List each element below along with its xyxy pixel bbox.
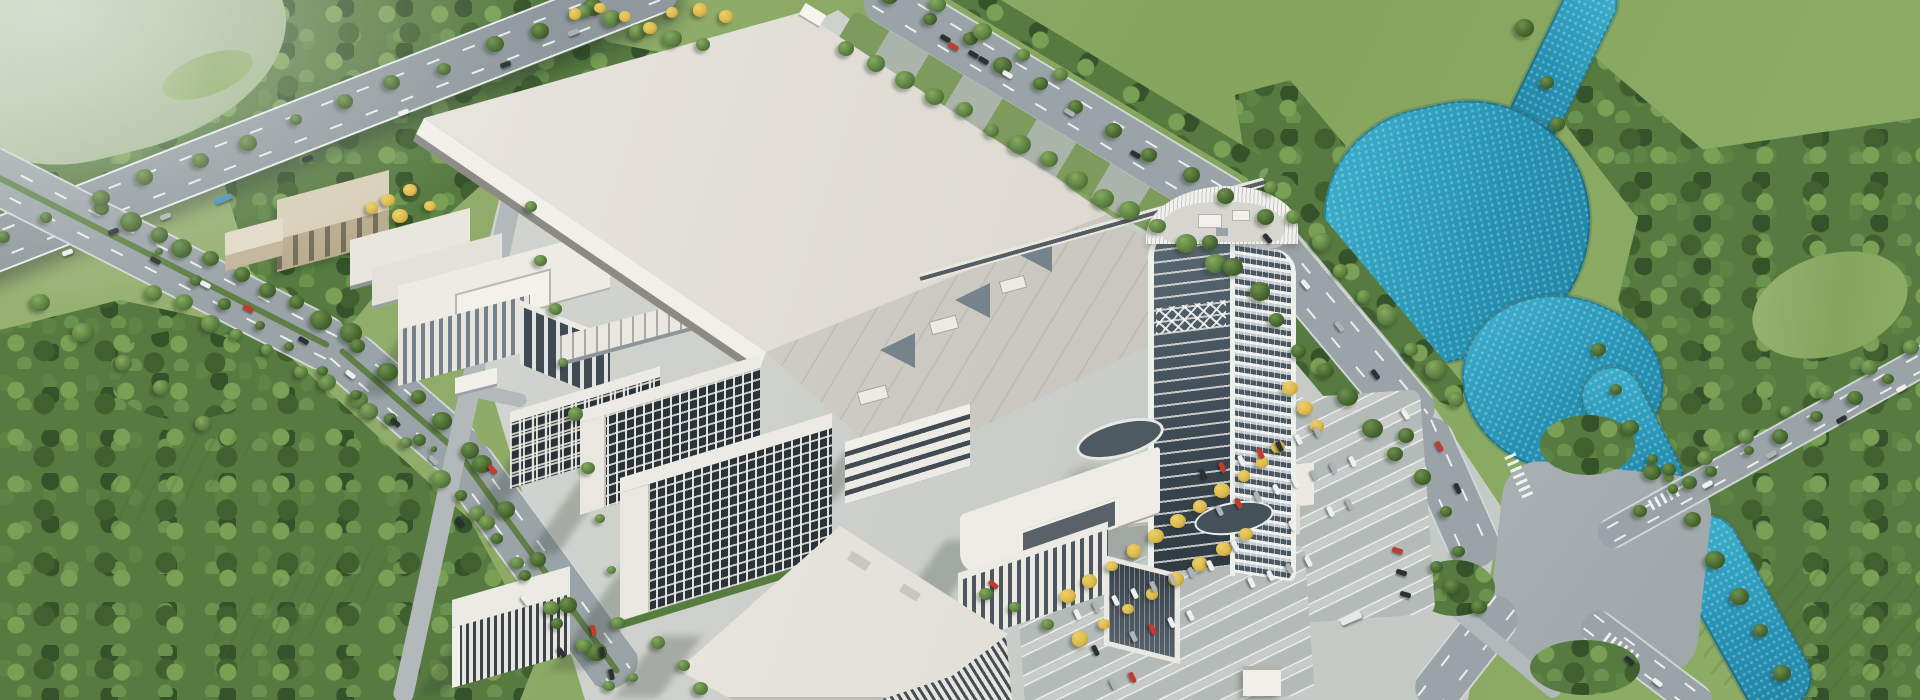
car — [1345, 498, 1354, 510]
tree-green-icon — [1810, 411, 1823, 422]
car — [1199, 468, 1208, 480]
tree-green-icon — [1040, 151, 1058, 167]
tree-green-icon — [1033, 77, 1048, 91]
car — [1237, 454, 1246, 466]
tree-green-icon — [431, 470, 451, 488]
tree-green-icon — [289, 295, 305, 309]
car — [1392, 547, 1404, 555]
tree-green-icon — [1286, 210, 1302, 224]
tree-green-icon — [1430, 561, 1444, 573]
tree-green-icon — [377, 363, 397, 381]
tree-green-icon — [1643, 464, 1661, 480]
tree-green-icon — [693, 682, 708, 696]
tree-green-icon — [1591, 343, 1606, 356]
tree-green-icon — [628, 673, 638, 682]
tree-yellow-icon — [1192, 557, 1208, 572]
tree-green-icon — [1016, 49, 1030, 61]
car — [567, 28, 579, 37]
car-bus — [214, 193, 233, 205]
tree-yellow-icon — [719, 10, 733, 23]
tree-green-icon — [1377, 306, 1398, 325]
tree-green-icon — [234, 267, 251, 282]
car — [590, 625, 597, 637]
tree-green-icon — [497, 501, 515, 518]
tree-green-icon — [486, 36, 504, 52]
tree-green-icon — [1753, 624, 1768, 637]
tree-green-icon — [1550, 117, 1566, 131]
tree-green-icon — [1217, 188, 1235, 204]
tree-green-icon — [120, 212, 142, 232]
tree-green-icon — [218, 298, 232, 310]
car — [1167, 616, 1176, 628]
tree-green-icon — [261, 344, 273, 355]
car — [1129, 630, 1138, 642]
tree-green-icon — [201, 315, 220, 332]
aerial-campus-render — [0, 0, 1920, 700]
tree-yellow-icon — [1072, 631, 1089, 646]
car — [1652, 677, 1664, 688]
tree-green-icon — [155, 248, 163, 255]
tree-green-icon — [310, 310, 332, 330]
tree-yellow-icon — [1106, 561, 1118, 572]
tree-green-icon — [491, 533, 503, 544]
tree-green-icon — [431, 446, 438, 452]
car — [1092, 601, 1101, 613]
car — [1231, 540, 1240, 552]
decor-layer — [0, 0, 1920, 700]
tree-green-icon — [929, 0, 946, 12]
tree-yellow-icon — [1239, 528, 1253, 541]
tree-green-icon — [1291, 344, 1307, 358]
tree-green-icon — [171, 239, 192, 258]
tree-green-icon — [1183, 167, 1200, 182]
tree-yellow-icon — [569, 8, 582, 20]
car — [520, 595, 531, 607]
tree-green-icon — [551, 618, 563, 629]
tree-green-icon — [1141, 148, 1157, 162]
car — [1272, 483, 1281, 495]
car — [107, 227, 119, 236]
tree-green-icon — [1818, 385, 1835, 400]
tree-green-icon — [1540, 76, 1554, 89]
car — [297, 336, 309, 346]
tree-green-icon — [558, 358, 568, 367]
tree-green-icon — [663, 30, 681, 47]
tree-green-icon — [284, 342, 294, 351]
tree-yellow-icon — [1170, 514, 1186, 529]
car — [428, 455, 439, 466]
tree-green-icon — [1053, 68, 1068, 82]
tree-green-icon — [1861, 360, 1878, 375]
tree-green-icon — [151, 227, 168, 243]
car — [397, 108, 409, 117]
tree-green-icon — [923, 13, 937, 25]
car — [1148, 623, 1157, 635]
tree-green-icon — [175, 294, 193, 310]
tree-green-icon — [383, 75, 400, 90]
tree-yellow-icon — [1297, 401, 1313, 415]
car — [1370, 369, 1381, 381]
tree-green-icon — [543, 601, 559, 615]
tree-green-icon — [559, 597, 576, 613]
car — [1288, 519, 1297, 531]
car — [1111, 594, 1120, 606]
car — [1262, 233, 1273, 245]
tree-green-icon — [895, 71, 915, 89]
tree-green-icon — [1398, 428, 1415, 443]
tree-green-icon — [1730, 588, 1749, 605]
tree-green-icon — [1176, 234, 1197, 253]
tree-green-icon — [455, 490, 467, 501]
car — [1624, 655, 1636, 666]
car — [977, 56, 989, 66]
tree-green-icon — [1404, 343, 1418, 356]
tree-green-icon — [1250, 282, 1271, 301]
car — [499, 60, 511, 69]
tree-green-icon — [290, 114, 302, 125]
tree-green-icon — [350, 339, 365, 353]
tree-green-icon — [651, 636, 665, 649]
car — [1895, 384, 1907, 394]
car — [1334, 321, 1345, 333]
tree-yellow-icon — [1060, 589, 1076, 604]
car — [455, 517, 466, 529]
tree-green-icon — [1317, 363, 1335, 379]
tree-green-icon — [318, 374, 335, 390]
tree-green-icon — [432, 412, 451, 429]
tree-green-icon — [1440, 506, 1452, 517]
tree-green-icon — [1425, 360, 1447, 380]
tree-green-icon — [294, 366, 308, 378]
tree-green-icon — [530, 552, 546, 567]
car — [1129, 150, 1141, 160]
tree-green-icon — [1471, 600, 1486, 614]
tree-green-icon — [979, 588, 993, 601]
tree-green-icon — [1357, 290, 1372, 304]
tree-green-icon — [136, 169, 154, 185]
tree-green-icon — [1682, 476, 1697, 490]
tree-green-icon — [1362, 419, 1383, 438]
tree-green-icon — [411, 390, 426, 404]
tree-yellow-icon — [1238, 470, 1251, 482]
tree-green-icon — [1684, 512, 1701, 527]
tree-green-icon — [956, 102, 973, 117]
tree-green-icon — [1744, 446, 1754, 455]
car — [1396, 569, 1408, 577]
tree-green-icon — [510, 557, 524, 570]
tree-green-icon — [1662, 463, 1676, 475]
car — [1453, 482, 1462, 494]
car — [1400, 409, 1410, 421]
tree-green-icon — [534, 255, 547, 266]
tree-green-icon — [30, 294, 49, 312]
car — [61, 248, 73, 257]
car — [947, 42, 959, 52]
tree-green-icon — [192, 153, 209, 168]
tree-yellow-icon — [693, 3, 708, 16]
tree-green-icon — [1610, 384, 1622, 395]
car — [1247, 576, 1256, 588]
tree-green-icon — [1847, 391, 1863, 406]
tree-green-icon — [1009, 135, 1030, 154]
tree-green-icon — [115, 355, 133, 371]
tree-yellow-icon — [666, 7, 678, 18]
tree-green-icon — [581, 462, 594, 474]
tree-green-icon — [259, 283, 276, 298]
tree-green-icon — [838, 41, 854, 56]
car — [487, 464, 498, 476]
tree-green-icon — [1414, 469, 1432, 485]
car — [1109, 678, 1118, 690]
tree-green-icon — [1705, 551, 1725, 569]
car-truck — [1340, 611, 1363, 626]
tree-green-icon — [202, 251, 219, 267]
car — [1234, 497, 1243, 509]
car — [608, 669, 615, 681]
tree-green-icon — [92, 190, 110, 206]
tree-green-icon — [1780, 406, 1792, 417]
tree-green-icon — [696, 38, 710, 51]
tree-green-icon — [40, 212, 52, 223]
tree-green-icon — [525, 201, 537, 212]
tree-yellow-icon — [366, 202, 379, 213]
tree-green-icon — [973, 23, 992, 40]
tree-green-icon — [1515, 19, 1535, 37]
tree-yellow-icon — [403, 184, 417, 196]
car — [556, 647, 567, 659]
car — [1348, 455, 1357, 467]
tree-green-icon — [1264, 181, 1279, 194]
tree-green-icon — [360, 403, 378, 419]
tree-green-icon — [1772, 429, 1789, 444]
tree-green-icon — [1093, 189, 1114, 208]
car — [1300, 279, 1311, 291]
tree-green-icon — [1105, 123, 1122, 138]
car — [1835, 415, 1847, 425]
tree-yellow-icon — [1122, 604, 1134, 615]
tree-green-icon — [1444, 579, 1461, 594]
tree-green-icon — [607, 566, 616, 574]
tree-green-icon — [255, 321, 266, 331]
tree-yellow-icon — [619, 11, 631, 22]
car — [1329, 462, 1338, 474]
car — [301, 154, 313, 163]
tree-yellow-icon — [1098, 619, 1109, 629]
tree-green-icon — [1738, 429, 1755, 444]
tree-yellow-icon — [392, 209, 408, 223]
car — [1130, 587, 1139, 599]
car — [1128, 671, 1137, 683]
car — [1310, 469, 1319, 481]
tree-green-icon — [1009, 602, 1021, 613]
car — [159, 212, 171, 221]
tree-green-icon — [531, 23, 548, 39]
tree-yellow-icon — [1282, 381, 1298, 395]
tree-green-icon — [1882, 374, 1894, 385]
tree-green-icon — [230, 329, 243, 340]
car — [1091, 644, 1100, 656]
tree-green-icon — [549, 303, 562, 315]
tree-green-icon — [925, 88, 944, 105]
tree-green-icon — [195, 416, 211, 431]
car — [149, 256, 161, 265]
tree-green-icon — [1202, 235, 1219, 250]
tree-green-icon — [72, 323, 94, 343]
car — [1215, 504, 1224, 516]
car — [390, 417, 401, 428]
car — [1285, 562, 1294, 574]
car — [199, 280, 211, 289]
tree-green-icon — [1269, 313, 1284, 327]
car — [1400, 591, 1412, 599]
tree-green-icon — [1622, 420, 1639, 435]
car — [1326, 505, 1335, 517]
tree-green-icon — [400, 437, 412, 448]
tree-green-icon — [985, 124, 999, 137]
car — [1294, 433, 1303, 445]
tree-green-icon — [1647, 454, 1658, 464]
tree-green-icon — [1337, 387, 1358, 406]
car — [1206, 559, 1215, 571]
tree-yellow-icon — [594, 3, 606, 14]
tree-green-icon — [1312, 233, 1332, 251]
tree-green-icon — [413, 434, 427, 446]
tree-green-icon — [437, 63, 451, 76]
car — [1073, 608, 1082, 620]
tree-green-icon — [1041, 619, 1053, 630]
tree-green-icon — [568, 407, 583, 421]
car — [1304, 555, 1313, 567]
car — [1701, 480, 1713, 490]
tree-green-icon — [576, 639, 591, 653]
tree-yellow-icon — [1082, 574, 1097, 588]
tree-yellow-icon — [381, 194, 394, 206]
tree-yellow-icon — [1148, 529, 1163, 543]
tree-yellow-icon — [643, 22, 657, 34]
tree-yellow-icon — [1193, 500, 1207, 513]
tree-green-icon — [1448, 392, 1464, 407]
tree-green-icon — [1452, 546, 1465, 558]
tree-green-icon — [1068, 171, 1087, 188]
tree-green-icon — [337, 94, 354, 109]
tree-green-icon — [153, 380, 170, 395]
tree-green-icon — [1333, 264, 1349, 278]
tree-green-icon — [677, 660, 690, 671]
tree-green-icon — [239, 135, 257, 151]
car — [1253, 490, 1262, 502]
car — [1765, 450, 1777, 460]
car — [1001, 70, 1013, 80]
tree-green-icon — [1697, 451, 1713, 465]
tree-green-icon — [519, 570, 531, 581]
tree-green-icon — [1257, 209, 1275, 225]
tree-green-icon — [603, 681, 615, 692]
car — [1291, 476, 1300, 488]
tree-green-icon — [0, 231, 10, 243]
tree-green-icon — [1387, 447, 1403, 462]
tree-green-icon — [595, 514, 605, 523]
car — [1186, 609, 1195, 621]
tree-green-icon — [1223, 258, 1243, 276]
tree-green-icon — [145, 285, 162, 301]
tree-green-icon — [1773, 665, 1790, 681]
tree-green-icon — [881, 0, 897, 4]
tree-yellow-icon — [1214, 483, 1231, 498]
tree-green-icon — [1633, 505, 1647, 518]
tree-green-icon — [1149, 219, 1165, 234]
tree-green-icon — [611, 617, 625, 629]
tree-green-icon — [1119, 201, 1140, 220]
tree-yellow-icon — [1216, 542, 1231, 556]
car — [1218, 461, 1227, 473]
tree-green-icon — [479, 515, 496, 530]
tree-yellow-icon — [424, 201, 436, 211]
tree-green-icon — [1903, 340, 1919, 355]
tree-yellow-icon — [1127, 544, 1142, 557]
car — [242, 304, 254, 314]
car — [1266, 569, 1275, 581]
tree-green-icon — [1668, 484, 1679, 494]
tree-green-icon — [867, 55, 885, 71]
car — [345, 369, 357, 380]
car — [1435, 440, 1445, 452]
tree-green-icon — [1705, 466, 1717, 476]
